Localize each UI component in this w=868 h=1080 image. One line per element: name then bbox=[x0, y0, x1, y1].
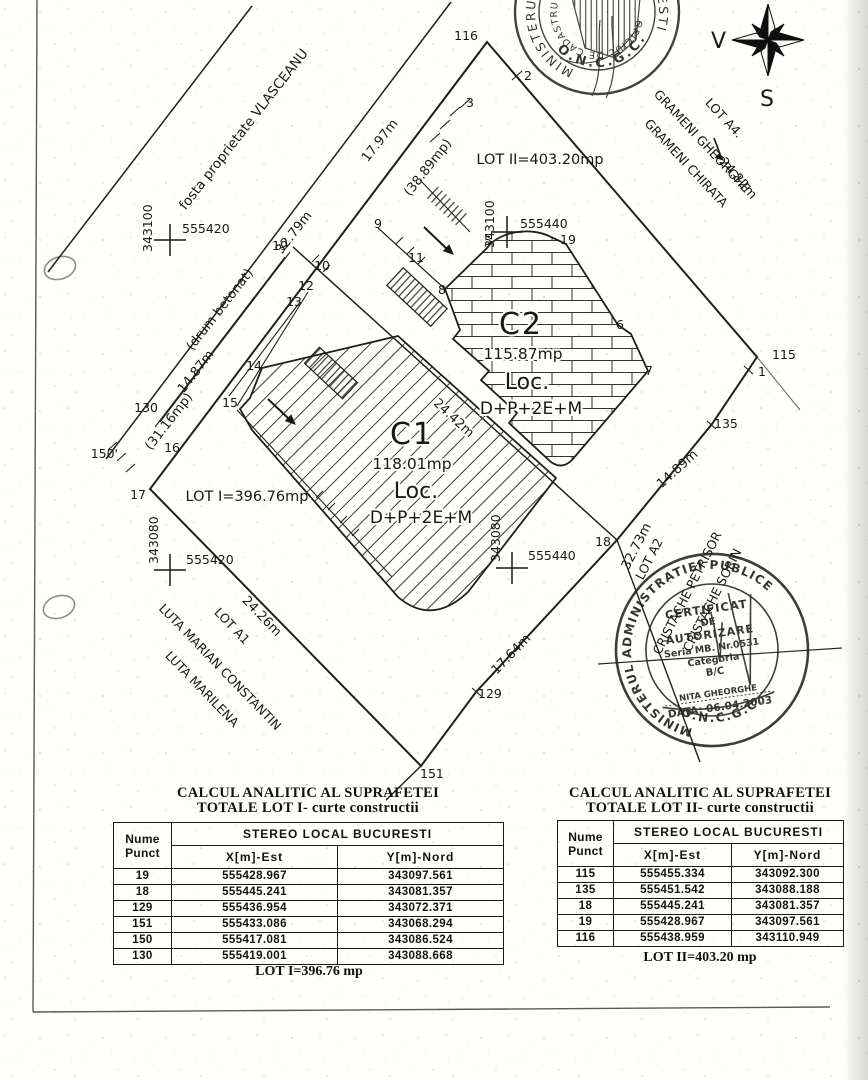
compass-west-label: V bbox=[711, 29, 726, 54]
scanned-cadastral-document: 343100 555420 343100 555440 343080 55542… bbox=[0, 0, 868, 1080]
table-row: 18555445.241343081.357 bbox=[114, 885, 504, 901]
table-row: 129555436.954343072.371 bbox=[114, 901, 504, 917]
building-regime: D+P+2E+M bbox=[370, 508, 472, 528]
lot2-area-label: LOT II=403.20mp bbox=[476, 152, 603, 168]
table-row: 18555445.241343081.357 bbox=[558, 899, 844, 915]
point-label: 9 bbox=[374, 216, 382, 231]
column-header: NumePunct bbox=[114, 823, 172, 869]
column-header: X[m]-Est bbox=[172, 846, 338, 869]
table-row: 115555455.334343092.300 bbox=[558, 867, 844, 883]
point-label: 7 bbox=[645, 363, 653, 378]
point-label: 130 bbox=[134, 400, 158, 415]
point-label: 17 bbox=[130, 487, 146, 502]
building-use: Loc. bbox=[505, 370, 549, 395]
column-header: STEREO LOCAL BUCURESTI bbox=[614, 821, 844, 844]
point-label: 8 bbox=[438, 282, 446, 297]
point-label: 12 bbox=[298, 278, 314, 293]
table-row: 116555438.959343110.949 bbox=[558, 931, 844, 947]
point-label: 14 bbox=[246, 358, 262, 373]
building-area: 115.87mp bbox=[483, 345, 562, 363]
column-header: STEREO LOCAL BUCURESTI bbox=[172, 823, 504, 846]
point-label: 16 bbox=[164, 440, 180, 455]
table-lot1-total: LOT I=396.76 mp bbox=[113, 964, 505, 980]
table-row: 130555419.001343088.668 bbox=[114, 949, 504, 965]
column-header: X[m]-Est bbox=[614, 844, 732, 867]
table-row: 19555428.967343097.561 bbox=[558, 915, 844, 931]
column-header: Y[m]-Nord bbox=[338, 846, 504, 869]
easting-label: 555420 bbox=[186, 552, 234, 567]
northing-label: 343080 bbox=[488, 514, 503, 562]
building-id: C1 bbox=[390, 417, 434, 452]
column-header: Y[m]-Nord bbox=[732, 844, 844, 867]
point-label: 10 bbox=[314, 258, 330, 273]
point-label: 151 bbox=[420, 766, 444, 781]
point-label: 1 bbox=[758, 364, 766, 379]
table-lot2: NumePunct STEREO LOCAL BUCURESTI X[m]-Es… bbox=[557, 820, 844, 947]
northing-label: 343080 bbox=[146, 516, 161, 564]
table-lot1: NumePunct STEREO LOCAL BUCURESTI X[m]-Es… bbox=[113, 822, 504, 965]
point-label: 15 bbox=[222, 395, 238, 410]
point-label: 5 bbox=[484, 233, 492, 248]
table-row: 19555428.967343097.561 bbox=[114, 869, 504, 885]
point-label: 129 bbox=[478, 686, 502, 701]
easting-label: 555440 bbox=[528, 548, 576, 563]
building-area: 118.01mp bbox=[372, 455, 451, 473]
point-label: 2 bbox=[524, 68, 532, 83]
point-label: 18 bbox=[595, 534, 611, 549]
table-lot1-title: CALCUL ANALITIC AL SUPRAFETEI TOTALE LOT… bbox=[110, 786, 506, 816]
table-lot2-total: LOT II=403.20 mp bbox=[550, 950, 850, 966]
lot1-area-label: LOT I=396.76mp bbox=[186, 489, 309, 505]
easting-label: 555420 bbox=[182, 221, 230, 236]
building-id: C2 bbox=[499, 307, 543, 342]
column-header: NumePunct bbox=[558, 821, 614, 867]
point-label: 115 bbox=[772, 347, 796, 362]
point-label: 3 bbox=[466, 95, 474, 110]
compass-south-label: S bbox=[760, 87, 774, 112]
building-use: Loc. bbox=[394, 479, 438, 504]
point-label: 135 bbox=[714, 416, 738, 431]
point-label: 116 bbox=[454, 28, 478, 43]
table-lot2-title: CALCUL ANALITIC AL SUPRAFETEI TOTALE LOT… bbox=[550, 786, 850, 816]
table-row: 150555417.081343086.524 bbox=[114, 933, 504, 949]
table-row: 135555451.542343088.188 bbox=[558, 883, 844, 899]
point-label: 11 bbox=[408, 250, 424, 265]
scanner-edge-shadow bbox=[842, 0, 868, 1080]
point-label: 6 bbox=[616, 317, 624, 332]
table-row: 151555433.086343068.294 bbox=[114, 917, 504, 933]
point-label: 19 bbox=[560, 232, 576, 247]
point-label: 150' bbox=[91, 446, 118, 461]
northing-label: 343100 bbox=[140, 204, 155, 252]
building-regime: D+P+2E+M bbox=[480, 399, 582, 419]
point-label: 13 bbox=[286, 294, 302, 309]
easting-label: 555440 bbox=[520, 216, 568, 231]
